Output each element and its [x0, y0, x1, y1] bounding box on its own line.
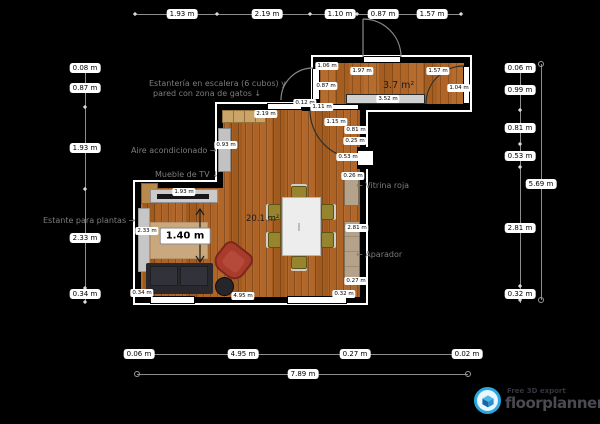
watermark-name: floorplanner [505, 394, 600, 412]
dim-endpoint [134, 371, 140, 377]
cube-icon [480, 393, 496, 409]
dim-label: 1.93 m [167, 9, 198, 19]
dim-endpoint [538, 297, 544, 303]
interior-dim: 0.81 m [344, 126, 367, 134]
interior-dim: 0.25 m [343, 137, 366, 145]
interior-dim: 0.93 m [214, 141, 237, 149]
annotation-ac: Aire acondicionado → [131, 146, 217, 156]
dim-label: 1.57 m [417, 9, 448, 19]
living-room-area-label: 20.1 m² [246, 214, 279, 224]
dim-label: 0.27 m [340, 349, 371, 359]
annotation-tv: Mueble de TV ↓ [155, 170, 219, 180]
interior-dim: 0.87 m [314, 82, 337, 90]
sofa-tv-distance-label: 1.40 m [160, 228, 211, 245]
dim-label: 0.02 m [452, 349, 483, 359]
interior-dim: 1.11 m [310, 103, 333, 111]
annotation-vitrina: ← Vitrina roja [356, 181, 409, 191]
dim-label: 0.08 m [70, 63, 101, 73]
dim-label-total: 5.69 m [526, 179, 557, 189]
dim-label: 2.33 m [70, 233, 101, 243]
dimension-line-right-inner [520, 64, 521, 303]
floorplan-canvas: 1.93 m 2.19 m 1.10 m 0.87 m 1.57 m 0.08 … [0, 0, 600, 424]
dim-label: 0.06 m [124, 349, 155, 359]
interior-dim: 1.15 m [324, 118, 347, 126]
interior-dim: 2.19 m [254, 110, 277, 118]
annotation-shelving-line1: Estantería en escalera (6 cubos) y [149, 79, 286, 89]
dimension-line-left [85, 64, 86, 303]
annotation-shelving-line2: pared con zona de gatos ↓ [153, 89, 261, 99]
dim-label: 0.34 m [70, 289, 101, 299]
interior-dim: 4.95 m [231, 292, 254, 300]
interior-dim: 2.81 m [345, 224, 368, 232]
interior-dim: 1.57 m [426, 67, 449, 75]
floorplanner-logo-icon [474, 387, 501, 414]
dim-label: 1.93 m [70, 143, 101, 153]
interior-dim: 3.52 m [376, 95, 399, 103]
interior-dim: 1.97 m [350, 67, 373, 75]
dim-label-total: 7.89 m [288, 369, 319, 379]
dim-label: 2.19 m [252, 9, 283, 19]
interior-dim: 2.33 m [135, 227, 158, 235]
dim-label: 0.87 m [70, 83, 101, 93]
interior-dim: 0.34 m [130, 289, 153, 297]
dim-endpoint [465, 371, 471, 377]
dim-label: 0.87 m [368, 9, 399, 19]
dim-label: 2.81 m [505, 223, 536, 233]
interior-dim: 0.53 m [336, 153, 359, 161]
dim-endpoint [538, 61, 544, 67]
interior-dim: 1.06 m [315, 62, 338, 70]
dim-label: 0.99 m [505, 85, 536, 95]
hall-area-label: 3.7 m² [383, 80, 414, 91]
interior-dim: 1.93 m [172, 188, 195, 196]
interior-dim: 0.27 m [344, 277, 367, 285]
annotation-aparador: ← Aparador [356, 250, 402, 260]
dim-label: 4.95 m [228, 349, 259, 359]
floorplanner-watermark[interactable]: Free 3D export floorplanner [470, 382, 598, 418]
annotation-plants: Estante para plantas → [43, 216, 135, 226]
dim-label: 0.06 m [505, 63, 536, 73]
hall-top-door-arc [363, 19, 401, 57]
interior-dim: 0.32 m [332, 290, 355, 298]
dim-label: 0.53 m [505, 151, 536, 161]
interior-dim: 0.26 m [341, 172, 364, 180]
dim-label: 1.10 m [325, 9, 356, 19]
dimension-line-bottom [135, 354, 468, 355]
interior-dim: 1.04 m [447, 84, 470, 92]
dim-label: 0.32 m [505, 289, 536, 299]
dim-label: 0.81 m [505, 123, 536, 133]
